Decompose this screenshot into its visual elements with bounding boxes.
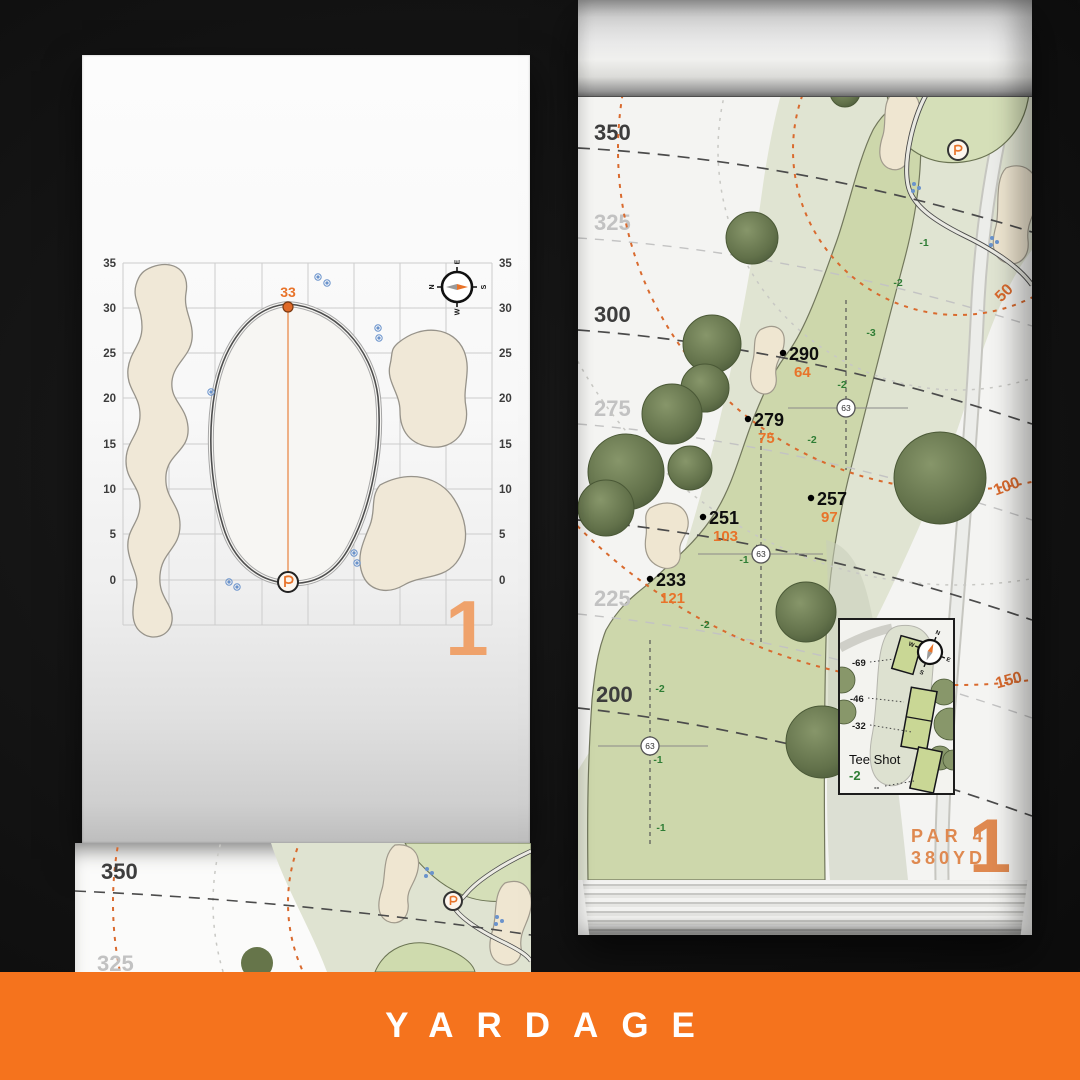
page-curl (578, 0, 1032, 97)
svg-text:-3: -3 (866, 327, 875, 339)
hole-number: 1 (445, 584, 488, 672)
svg-text:-1: -1 (739, 554, 748, 566)
inset-title: Tee Shot (849, 752, 901, 767)
hole-map: 350 325 300 275 250 225 200 50 100 150 (578, 0, 1032, 935)
svg-text:E: E (945, 657, 951, 664)
svg-text:251: 251 (709, 508, 739, 528)
green-detail-page: 33 35 30 25 20 15 10 5 0 (82, 55, 530, 843)
svg-text:300: 300 (594, 302, 631, 327)
svg-text:275: 275 (594, 396, 631, 421)
svg-text:S: S (481, 284, 488, 289)
svg-text:35: 35 (103, 258, 116, 270)
bunker-top-right (389, 330, 467, 447)
svg-text:-1: -1 (919, 237, 928, 249)
tee-shot-inset: -69 -46 -32 -- Tee Shot -2 N E S W (838, 618, 955, 795)
svg-text:20: 20 (103, 393, 116, 405)
svg-text:30: 30 (103, 303, 116, 315)
hole-number: 1 (969, 804, 1011, 889)
svg-text:-32: -32 (852, 721, 866, 732)
svg-text:-1: -1 (653, 754, 662, 766)
tree (241, 947, 273, 972)
svg-text:150: 150 (994, 669, 1024, 692)
green-outline (211, 304, 379, 583)
svg-text:63: 63 (645, 741, 655, 751)
svg-text:10: 10 (499, 484, 512, 496)
svg-text:279: 279 (754, 410, 784, 430)
svg-text:97: 97 (821, 509, 838, 526)
yardage-banner: YARDAGE (0, 972, 1080, 1080)
inset-elevation: -2 (849, 768, 861, 783)
svg-text:--: -- (874, 783, 880, 792)
svg-text:5: 5 (499, 529, 506, 541)
contour-325: 325 (97, 951, 134, 972)
svg-text:-2: -2 (700, 619, 709, 631)
svg-text:-69: -69 (852, 658, 866, 669)
green-front-marker (278, 572, 298, 592)
contour-350: 350 (101, 859, 138, 884)
svg-text:200: 200 (596, 682, 633, 707)
svg-text:25: 25 (499, 348, 512, 360)
svg-text:257: 257 (817, 489, 847, 509)
flag-marker (444, 892, 462, 910)
svg-text:20: 20 (499, 393, 512, 405)
next-page-peek: 350 325 (75, 843, 531, 972)
arc-labels: 50 100 150 (991, 281, 1024, 692)
svg-text:103: 103 (713, 528, 738, 545)
svg-text:75: 75 (758, 430, 775, 447)
svg-text:-46: -46 (850, 694, 864, 705)
hole-map-page: 350 325 300 275 250 225 200 50 100 150 (578, 0, 1032, 935)
svg-text:10: 10 (103, 484, 116, 496)
svg-text:0: 0 (499, 575, 505, 587)
svg-text:64: 64 (794, 364, 811, 381)
svg-text:25: 25 (103, 348, 116, 360)
svg-text:E: E (455, 259, 462, 264)
svg-text:15: 15 (499, 439, 512, 451)
tee-shot-map: -69 -46 -32 -- Tee Shot -2 N E S W (840, 620, 953, 793)
next-page-map: 350 325 (75, 843, 531, 972)
svg-text:15: 15 (103, 439, 116, 451)
svg-text:-1: -1 (656, 822, 665, 834)
svg-text:-2: -2 (655, 683, 664, 695)
pin-depth-label: 33 (280, 284, 296, 300)
bunker-left (126, 265, 192, 637)
flag-marker (948, 140, 968, 160)
svg-text:N: N (429, 284, 436, 289)
svg-text:30: 30 (499, 303, 512, 315)
green-detail-map: 33 35 30 25 20 15 10 5 0 (82, 55, 530, 843)
svg-text:W: W (455, 308, 462, 315)
svg-text:233: 233 (656, 570, 686, 590)
svg-text:121: 121 (660, 590, 685, 607)
compass-icon: N E S W (429, 259, 488, 315)
svg-text:35: 35 (499, 258, 512, 270)
page-edge-stack (578, 880, 1032, 935)
svg-text:-2: -2 (807, 434, 816, 446)
banner-title: YARDAGE (362, 1006, 718, 1046)
yardage-book-mockup: { "banner": { "title": "YARDAGE" }, "lef… (0, 0, 1080, 1080)
svg-text:63: 63 (756, 549, 766, 559)
svg-text:225: 225 (594, 586, 631, 611)
svg-text:0: 0 (110, 575, 116, 587)
svg-text:100: 100 (991, 474, 1022, 499)
svg-text:63: 63 (841, 403, 851, 413)
svg-text:-2: -2 (893, 277, 902, 289)
svg-text:350: 350 (594, 120, 631, 145)
pin-depth-dot (283, 302, 293, 312)
svg-text:290: 290 (789, 344, 819, 364)
svg-text:325: 325 (594, 210, 631, 235)
svg-text:-2: -2 (837, 379, 846, 391)
bunker-bottom-right (360, 477, 466, 591)
svg-text:N: N (934, 630, 940, 637)
svg-text:5: 5 (110, 529, 117, 541)
